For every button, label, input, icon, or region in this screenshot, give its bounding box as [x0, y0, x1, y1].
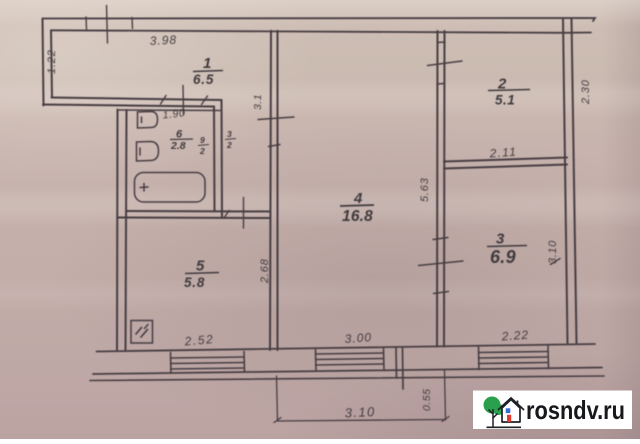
svg-text:3.00: 3.00: [344, 330, 372, 346]
svg-text:3.10: 3.10: [344, 404, 376, 421]
svg-text:5.63: 5.63: [419, 177, 431, 202]
svg-text:1.22: 1.22: [46, 49, 58, 74]
svg-text:2.8: 2.8: [170, 140, 186, 152]
svg-text:1: 1: [203, 55, 211, 72]
svg-text:2.22: 2.22: [500, 328, 529, 344]
svg-text:5: 5: [196, 258, 205, 275]
svg-text:2.52: 2.52: [183, 332, 215, 349]
svg-text:3: 3: [227, 129, 232, 139]
svg-text:5.1: 5.1: [495, 93, 515, 108]
svg-text:1.90: 1.90: [162, 107, 186, 121]
svg-text:4: 4: [353, 190, 363, 207]
svg-text:3.98: 3.98: [149, 33, 177, 48]
svg-text:3.1: 3.1: [252, 94, 264, 110]
svg-text:0.55: 0.55: [421, 389, 433, 411]
svg-text:2.11: 2.11: [488, 145, 517, 161]
svg-text:5.8: 5.8: [184, 275, 205, 290]
svg-text:2.30: 2.30: [580, 79, 592, 105]
svg-text:9: 9: [200, 135, 205, 145]
svg-text:3.10: 3.10: [547, 240, 559, 264]
svg-text:2: 2: [199, 146, 205, 156]
svg-text:16.8: 16.8: [342, 208, 373, 225]
svg-text:6.9: 6.9: [490, 247, 516, 267]
svg-text:6.5: 6.5: [193, 72, 214, 87]
svg-text:2: 2: [226, 140, 232, 150]
svg-text:2.68: 2.68: [259, 258, 271, 284]
svg-text:rosndv.ru: rosndv.ru: [526, 395, 625, 425]
svg-text:3: 3: [496, 231, 505, 248]
